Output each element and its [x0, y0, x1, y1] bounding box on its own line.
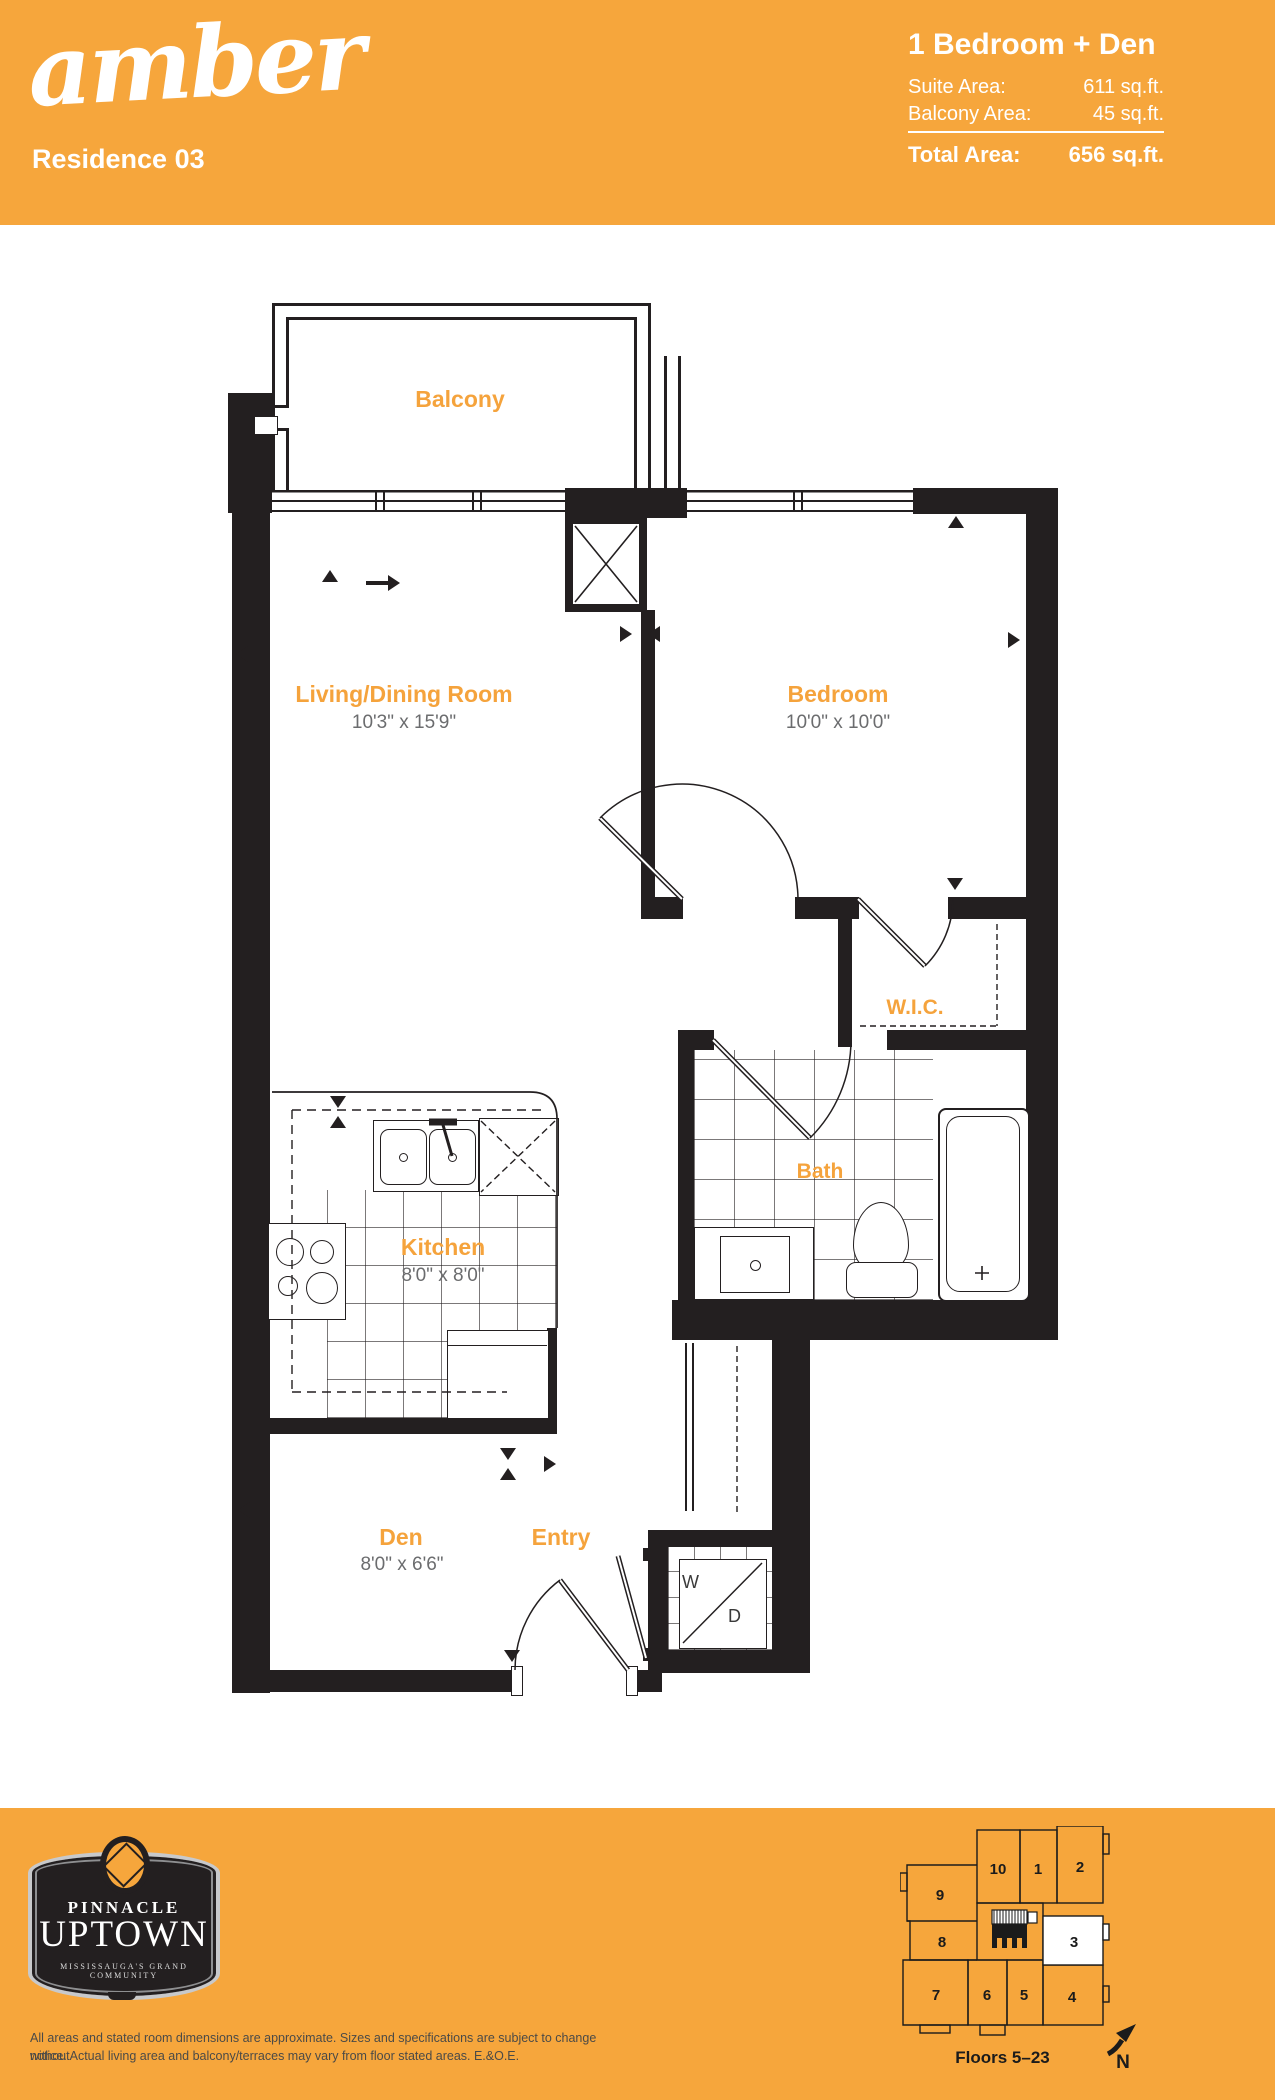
keyplan-unit-8: 8 — [938, 1934, 946, 1951]
keyplan-unit-3-highlighted: 3 — [1070, 1934, 1078, 1951]
logo-bottom-tab — [108, 1992, 136, 2000]
dimension-arrow-right — [544, 1456, 556, 1472]
room-label-balcony: Balcony — [415, 386, 504, 413]
floorplan-page: amber Residence 03 1 Bedroom + Den Suite… — [0, 0, 1275, 2100]
dimension-arrow-down — [330, 1096, 346, 1108]
north-label: N — [1108, 2052, 1138, 2074]
room-label-living-dining: Living/Dining Room — [295, 681, 512, 708]
room-dims-bedroom: 10'0" x 10'0" — [786, 712, 890, 734]
keyplan: 10 1 2 9 8 3 7 6 5 4 — [900, 1826, 1130, 2040]
logo-line2: UPTOWN — [32, 1913, 216, 1956]
room-label-entry: Entry — [532, 1524, 591, 1551]
room-label-den: Den — [379, 1524, 422, 1551]
logo-tagline: MISSISSAUGA'S GRAND COMMUNITY — [32, 1962, 216, 1980]
room-dims-den: 8'0" x 6'6" — [360, 1554, 443, 1576]
room-label-wic: W.I.C. — [886, 996, 943, 1020]
plan-linework — [0, 0, 1275, 2100]
keyplan-unit-1: 1 — [1034, 1861, 1042, 1878]
dimension-arrow-down — [947, 878, 963, 890]
keyplan-unit-6: 6 — [983, 1987, 991, 2004]
door-slide-arrow-stem — [366, 581, 388, 585]
pinnacle-gem-icon — [100, 1836, 150, 1894]
keyplan-unit-2: 2 — [1076, 1859, 1084, 1876]
keyplan-unit-10: 10 — [990, 1861, 1007, 1878]
dimension-arrow-up — [948, 516, 964, 528]
dimension-arrow-right — [620, 626, 632, 642]
room-dims-living-dining: 10'3" x 15'9" — [352, 712, 456, 734]
room-dims-kitchen: 8'0" x 8'0" — [401, 1265, 484, 1287]
dimension-arrow-up — [322, 570, 338, 582]
dimension-arrow-up — [330, 1116, 346, 1128]
dimension-arrow-right — [1008, 632, 1020, 648]
room-label-bath: Bath — [797, 1160, 844, 1184]
keyplan-unit-5: 5 — [1020, 1987, 1028, 2004]
room-label-kitchen: Kitchen — [401, 1234, 485, 1261]
dimension-arrow-down — [500, 1448, 516, 1460]
dimension-arrow-left — [648, 626, 660, 642]
dimension-arrow-up — [500, 1468, 516, 1480]
dimension-arrow-left — [238, 1502, 250, 1518]
disclaimer-line2: notice. Actual living area and balcony/t… — [30, 2048, 610, 2066]
keyplan-unit-4: 4 — [1068, 1989, 1077, 2006]
keyplan-floors-label: Floors 5–23 — [930, 2048, 1075, 2068]
dimension-arrow-left — [236, 646, 248, 662]
keyplan-unit-7: 7 — [932, 1987, 940, 2004]
keyplan-unit-9: 9 — [936, 1887, 944, 1904]
dimension-arrow-down — [504, 1650, 520, 1662]
door-slide-arrow-head — [388, 575, 400, 591]
room-label-bedroom: Bedroom — [788, 681, 889, 708]
